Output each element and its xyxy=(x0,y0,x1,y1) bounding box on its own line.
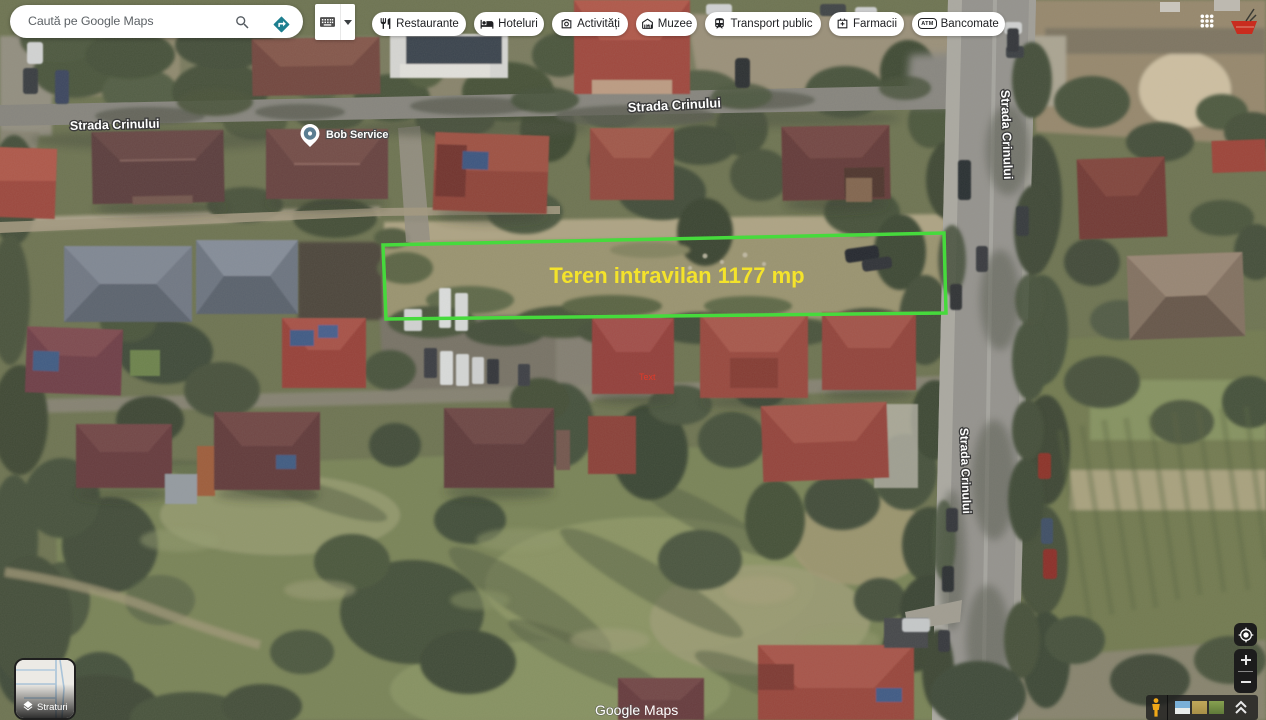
svg-text:Strada Crinului: Strada Crinului xyxy=(70,117,160,133)
svg-text:Bob Service: Bob Service xyxy=(326,129,388,141)
svg-text:Teren intravilan 1177 mp: Teren intravilan 1177 mp xyxy=(549,263,804,288)
svg-text:Text: Text xyxy=(639,372,656,382)
svg-text:Google Maps: Google Maps xyxy=(595,702,678,718)
